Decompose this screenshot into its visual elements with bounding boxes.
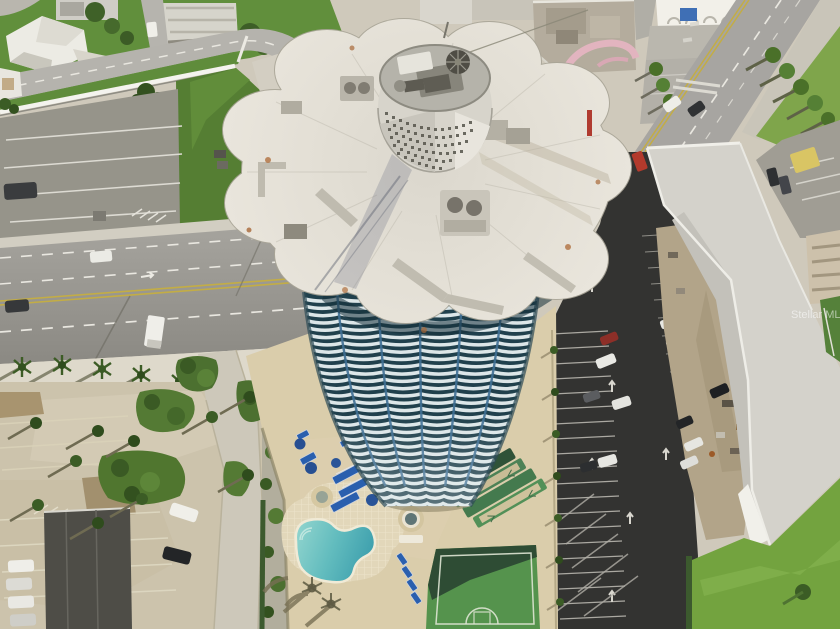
svg-text:Stellar MLS: Stellar MLS bbox=[791, 309, 840, 321]
